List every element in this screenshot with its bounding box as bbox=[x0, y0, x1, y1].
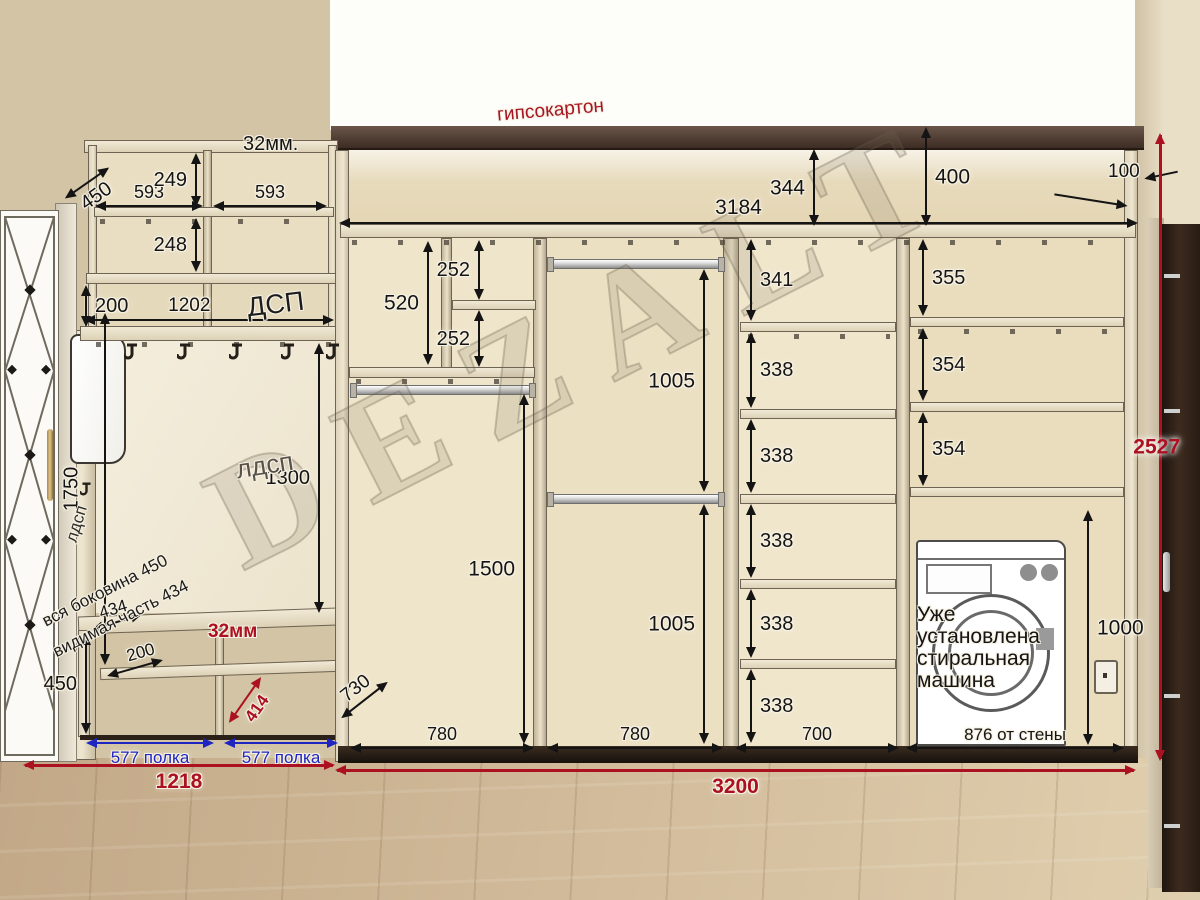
door-hinge-icon bbox=[1164, 409, 1180, 413]
c3-shelf-4 bbox=[740, 579, 896, 589]
ward-left-side bbox=[335, 150, 349, 762]
ward-top-shelf bbox=[340, 224, 1136, 238]
c3-shelf-1 bbox=[740, 322, 896, 332]
ward-partition-3 bbox=[896, 238, 910, 752]
dim-gap-100-label: 100 bbox=[1108, 162, 1140, 182]
dsp-label: ДСП bbox=[245, 287, 305, 322]
coat-hook-icon bbox=[229, 343, 245, 365]
coat-hook-icon bbox=[281, 343, 297, 365]
top-gap-label: 32мм. bbox=[243, 134, 298, 155]
door-handle bbox=[1163, 552, 1170, 592]
outlet-icon bbox=[1094, 660, 1118, 694]
drywall-strip bbox=[331, 126, 1144, 150]
hall-dsp-shelf bbox=[80, 326, 338, 341]
ward-back-c2 bbox=[546, 228, 724, 748]
ceiling-band bbox=[330, 0, 1145, 130]
c4-shelf-1 bbox=[910, 317, 1124, 327]
washer-note: Уже установлена стиральная машина bbox=[917, 604, 1069, 692]
entry-door-handle bbox=[47, 429, 53, 501]
c3-shelf-3 bbox=[740, 494, 896, 504]
mirror bbox=[70, 334, 126, 464]
door-hinge-icon bbox=[1164, 824, 1180, 828]
c2-mid-rod bbox=[551, 494, 721, 504]
wardrobe-drawing: Уже установлена стиральная машина DEZALT… bbox=[0, 0, 1200, 900]
door-hinge-icon bbox=[1164, 274, 1180, 278]
washer-knob-icon bbox=[1041, 564, 1058, 581]
washer-knob-icon bbox=[1020, 564, 1037, 581]
washer-panel bbox=[926, 564, 992, 594]
c1-hanging-rod bbox=[354, 385, 532, 395]
ward-partition-1 bbox=[533, 238, 547, 752]
c3-shelf-2 bbox=[740, 409, 896, 419]
coat-hook-icon bbox=[326, 343, 342, 365]
c1-small-shelf bbox=[452, 300, 536, 310]
right-door bbox=[1162, 224, 1200, 892]
hall-cabinet-bottom bbox=[86, 273, 336, 284]
c3-shelf-5 bbox=[740, 659, 896, 669]
coat-hook-icon bbox=[124, 343, 140, 365]
ward-partition-2 bbox=[723, 238, 739, 752]
ward-back-c3 bbox=[739, 228, 897, 748]
bench-divider bbox=[215, 630, 224, 738]
c4-shelf-3 bbox=[910, 487, 1124, 497]
c2-top-rod bbox=[551, 259, 721, 269]
washer-top-line bbox=[918, 558, 1064, 560]
c1-wide-shelf bbox=[349, 367, 535, 378]
coat-hook-icon bbox=[177, 343, 193, 365]
door-hinge-icon bbox=[1164, 694, 1180, 698]
c4-shelf-2 bbox=[910, 402, 1124, 412]
bench-div-label: 32мм bbox=[208, 622, 257, 642]
